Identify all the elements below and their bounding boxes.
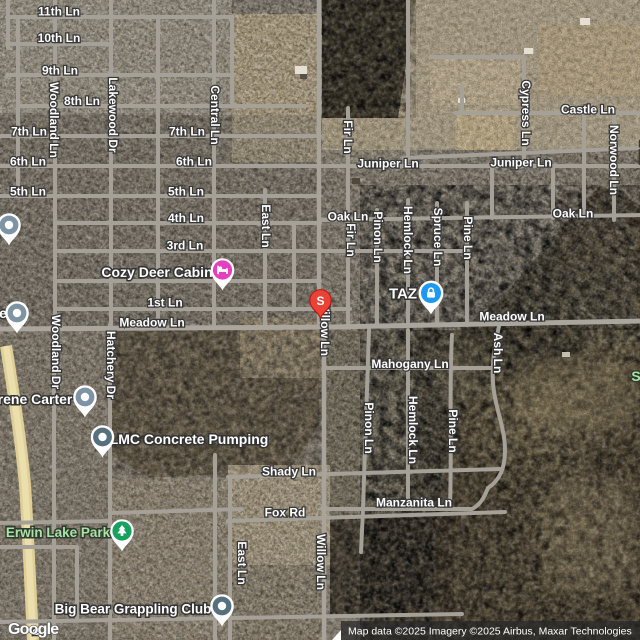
svg-text:Central Ln: Central Ln [208, 85, 222, 144]
svg-text:Erwin Lake Park: Erwin Lake Park [6, 525, 111, 540]
svg-text:Pinon Ln: Pinon Ln [371, 211, 385, 262]
svg-text:rene Carter: rene Carter [0, 391, 73, 407]
svg-text:Map data ©2025 Imagery ©2025 A: Map data ©2025 Imagery ©2025 Airbus, Max… [348, 626, 632, 638]
svg-text:1st Ln: 1st Ln [147, 296, 182, 310]
svg-text:TAZ: TAZ [389, 286, 417, 303]
svg-text:Hemlock Ln: Hemlock Ln [406, 396, 420, 464]
svg-text:8th Ln: 8th Ln [64, 94, 100, 108]
svg-text:Juniper Ln: Juniper Ln [357, 157, 418, 171]
svg-text:Cozy Deer Cabin: Cozy Deer Cabin [101, 264, 212, 280]
svg-text:Spruce Ln: Spruce Ln [431, 208, 445, 267]
svg-text:7th Ln: 7th Ln [11, 125, 47, 139]
svg-text:Big Bear Grappling Club: Big Bear Grappling Club [55, 602, 212, 617]
svg-text:Fox Rd: Fox Rd [265, 506, 306, 520]
svg-text:Castle Ln: Castle Ln [561, 103, 615, 117]
svg-text:Shady Ln: Shady Ln [262, 465, 316, 479]
svg-text:Juniper Ln: Juniper Ln [490, 156, 551, 170]
svg-text:Hemlock Ln: Hemlock Ln [401, 206, 415, 274]
svg-text:Ash Ln: Ash Ln [491, 333, 505, 374]
svg-text:7th Ln: 7th Ln [169, 125, 205, 139]
svg-text:Oak Ln: Oak Ln [328, 210, 369, 224]
svg-text:Pine Ln: Pine Ln [461, 216, 475, 259]
svg-text:Hatchery Dr: Hatchery Dr [104, 331, 118, 399]
svg-text:Willow Ln: Willow Ln [314, 534, 328, 590]
svg-text:East Ln: East Ln [259, 204, 273, 247]
svg-text:Mahogany Ln: Mahogany Ln [371, 357, 448, 371]
svg-text:9th Ln: 9th Ln [42, 64, 78, 78]
svg-text:6th Ln: 6th Ln [10, 155, 46, 169]
svg-text:Oak Ln: Oak Ln [553, 207, 594, 221]
svg-text:Meadow Ln: Meadow Ln [479, 310, 544, 324]
svg-text:Meadow Ln: Meadow Ln [119, 316, 184, 330]
svg-text:East Ln: East Ln [235, 541, 249, 584]
svg-text:Google: Google [8, 621, 59, 638]
svg-text:5th Ln: 5th Ln [10, 185, 46, 199]
svg-text:S: S [631, 368, 640, 384]
svg-text:Pine Ln: Pine Ln [446, 409, 460, 452]
svg-text:Cypress Ln: Cypress Ln [519, 80, 533, 145]
svg-text:5th Ln: 5th Ln [168, 185, 204, 199]
svg-text:11th Ln: 11th Ln [38, 5, 80, 19]
svg-text:3rd Ln: 3rd Ln [167, 239, 204, 253]
svg-text:4th Ln: 4th Ln [168, 211, 204, 225]
svg-text:Woodland Dr: Woodland Dr [49, 315, 63, 390]
svg-text:10th Ln: 10th Ln [38, 31, 81, 45]
svg-text:Lakewood Dr: Lakewood Dr [106, 77, 120, 153]
svg-text:Pinon Ln: Pinon Ln [362, 402, 376, 453]
svg-text:LMC Concrete Pumping: LMC Concrete Pumping [110, 431, 269, 447]
svg-text:S: S [316, 294, 324, 308]
svg-text:Manzanita Ln: Manzanita Ln [376, 496, 452, 510]
svg-text:Fir Ln: Fir Ln [344, 223, 358, 256]
svg-text:Norwood Ln: Norwood Ln [607, 125, 621, 195]
svg-text:6th Ln: 6th Ln [176, 155, 212, 169]
svg-text:Fir Ln: Fir Ln [341, 120, 355, 153]
svg-text:Woodland Ln: Woodland Ln [47, 82, 61, 158]
